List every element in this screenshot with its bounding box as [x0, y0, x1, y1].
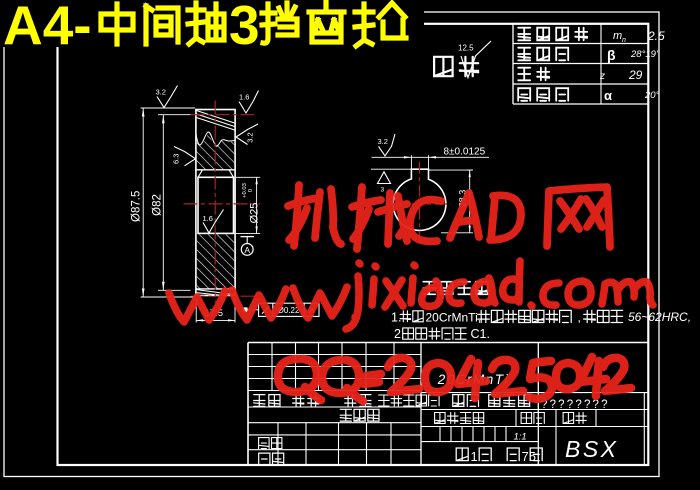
svg-text:β: β [607, 47, 616, 63]
svg-text:BSX: BSX [565, 436, 619, 462]
svg-text:56~62HRC,: 56~62HRC, [628, 310, 691, 324]
svg-text:3: 3 [381, 187, 385, 194]
svg-text:m: m [613, 30, 622, 42]
svg-text:A4-: A4- [3, 0, 92, 56]
svg-text:1.: 1. [391, 311, 401, 325]
svg-text:12.5: 12.5 [458, 44, 474, 53]
svg-text:3.2: 3.2 [246, 132, 255, 142]
svg-text:3.2: 3.2 [378, 137, 388, 146]
svg-text:3.2: 3.2 [156, 88, 166, 97]
svg-text:75: 75 [522, 449, 536, 464]
svg-text:Ø87.5: Ø87.5 [131, 191, 143, 222]
svg-text:A: A [244, 245, 250, 255]
svg-text:20°: 20° [644, 90, 660, 101]
svg-text:1: 1 [471, 449, 478, 464]
svg-text:n: n [622, 37, 626, 44]
svg-text:,: , [578, 311, 581, 325]
svg-text:1:1: 1:1 [514, 432, 527, 443]
svg-text:8±0.0125: 8±0.0125 [444, 147, 486, 158]
svg-text:Ø25: Ø25 [249, 203, 261, 224]
svg-text:1.6: 1.6 [203, 214, 213, 223]
svg-text:α: α [604, 88, 612, 103]
svg-text:20CrMnTi,: 20CrMnTi, [426, 311, 482, 325]
svg-text:C1.: C1. [471, 327, 490, 341]
svg-text:? ? ? ? ? ? ? ?: ? ? ? ? ? ? ? ? [541, 399, 607, 411]
svg-text:28°19': 28°19' [630, 49, 659, 60]
svg-text:29: 29 [628, 68, 643, 82]
svg-text:0: 0 [248, 189, 254, 192]
svg-text:z: z [599, 71, 605, 82]
svg-text:6.3: 6.3 [172, 154, 181, 164]
svg-text:1.6: 1.6 [239, 93, 249, 102]
svg-text:Ø82: Ø82 [152, 194, 164, 216]
svg-text:3: 3 [229, 0, 260, 56]
svg-text:2.5: 2.5 [647, 29, 665, 43]
